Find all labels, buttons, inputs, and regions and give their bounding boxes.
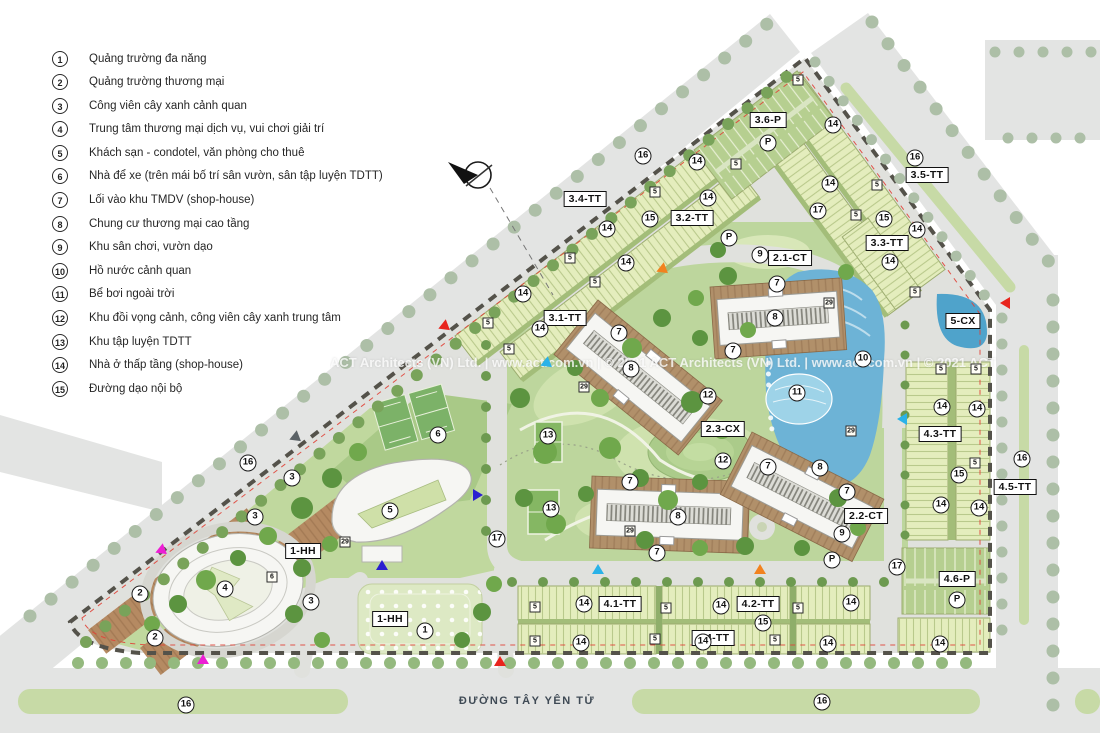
map-badge: 5 (650, 634, 661, 645)
map-badge: 5 (936, 364, 947, 375)
map-circle-marker: 14 (700, 190, 717, 207)
map-circle-marker: 11 (789, 385, 806, 402)
map-badge: 5 (650, 187, 661, 198)
map-circle-marker: 7 (839, 484, 856, 501)
direction-arrow-icon (197, 654, 209, 664)
masterplan-page: ACT Architects (VN) Ltd. | www.act.com.v… (0, 0, 1100, 733)
map-badge: 5 (970, 458, 981, 469)
map-circle-marker: 14 (689, 154, 706, 171)
map-badge: 5 (590, 277, 601, 288)
legend: 1 Quảng trường đa năng 2 Quảng trường th… (52, 50, 383, 404)
map-circle-marker: 8 (767, 310, 784, 327)
map-badge: 5 (731, 159, 742, 170)
legend-item-number: 9 (52, 239, 68, 255)
legend-item: 7 Lối vào khu TMDV (shop-house) (52, 192, 383, 209)
map-badge: 5 (504, 344, 515, 355)
map-circle-marker: 14 (843, 595, 860, 612)
map-circle-marker: 14 (695, 634, 712, 651)
map-circle-marker: 14 (969, 401, 986, 418)
legend-item-label: Hồ nước cảnh quan (89, 265, 191, 277)
legend-item-label: Quảng trường đa năng (89, 53, 207, 65)
direction-arrow-icon (754, 564, 766, 574)
map-circle-marker: 8 (812, 460, 829, 477)
map-circle-marker: 1 (417, 623, 434, 640)
legend-item-number: 15 (52, 381, 68, 397)
map-circle-marker: 7 (611, 325, 628, 342)
zone-label: 4.5-TT (994, 479, 1037, 495)
zone-label: 3.5-TT (906, 167, 949, 183)
map-circle-marker: 16 (240, 455, 257, 472)
map-circle-marker: 17 (810, 203, 827, 220)
map-circle-marker: 17 (489, 531, 506, 548)
map-circle-marker: 14 (822, 176, 839, 193)
map-circle-marker: 14 (933, 497, 950, 514)
map-badge: 5 (910, 287, 921, 298)
legend-item: 10 Hồ nước cảnh quan (52, 262, 383, 279)
map-badge: 5 (793, 603, 804, 614)
direction-arrow-icon (494, 656, 506, 666)
zone-label: 2.2-CT (844, 508, 888, 524)
direction-arrow-icon (289, 430, 304, 446)
map-circle-marker: 12 (715, 453, 732, 470)
map-circle-marker: P (949, 592, 966, 609)
map-badge: 5 (872, 180, 883, 191)
legend-item-number: 11 (52, 286, 68, 302)
legend-item-label: Khu sân chơi, vườn dạo (89, 241, 213, 253)
map-circle-marker: 17 (889, 559, 906, 576)
map-circle-marker: 4 (217, 581, 234, 598)
zone-label: 2.3-CX (701, 421, 745, 437)
legend-item-label: Bể bơi ngoài trời (89, 288, 174, 300)
map-circle-marker: 2 (147, 630, 164, 647)
map-badge: 29 (579, 382, 590, 393)
map-circle-marker: 15 (951, 467, 968, 484)
map-circle-marker: 14 (713, 598, 730, 615)
map-badge: 5 (971, 364, 982, 375)
legend-item-label: Đường dạo nội bộ (89, 383, 182, 395)
map-circle-marker: P (721, 230, 738, 247)
map-circle-marker: 7 (725, 343, 742, 360)
map-circle-marker: 14 (825, 117, 842, 134)
map-circle-marker: 12 (700, 388, 717, 405)
legend-item: 2 Quảng trường thương mại (52, 74, 383, 91)
direction-arrow-icon (155, 543, 170, 559)
map-badge: 29 (824, 298, 835, 309)
legend-item-number: 14 (52, 357, 68, 373)
legend-item: 14 Nhà ở thấp tầng (shop-house) (52, 357, 383, 374)
legend-item-label: Khách sạn - condotel, văn phòng cho thuê (89, 147, 304, 159)
direction-arrow-icon (438, 319, 453, 335)
map-circle-marker: 14 (882, 254, 899, 271)
map-circle-marker: 13 (540, 428, 557, 445)
direction-arrow-icon (1000, 297, 1010, 309)
map-badge: 29 (340, 537, 351, 548)
direction-arrow-icon (376, 560, 388, 570)
direction-arrow-icon (473, 489, 483, 501)
map-circle-marker: 7 (649, 545, 666, 562)
map-circle-marker: 14 (820, 636, 837, 653)
legend-item-label: Khu đồi vọng cảnh, công viên cây xanh tr… (89, 312, 341, 324)
zone-label: 3.3-TT (866, 235, 909, 251)
map-badge: 5 (770, 635, 781, 646)
map-badge: 5 (530, 636, 541, 647)
map-badge: 29 (846, 426, 857, 437)
map-circle-marker: 16 (907, 150, 924, 167)
map-badge: 5 (851, 210, 862, 221)
legend-item: 3 Công viên cây xanh cảnh quan (52, 97, 383, 114)
map-circle-marker: 9 (834, 526, 851, 543)
map-badge: 5 (793, 75, 804, 86)
legend-item: 1 Quảng trường đa năng (52, 50, 383, 67)
map-circle-marker: 3 (247, 509, 264, 526)
legend-item-label: Nhà ở thấp tầng (shop-house) (89, 359, 243, 371)
zone-label: 1-HH (285, 543, 321, 559)
map-circle-marker: 8 (623, 361, 640, 378)
legend-item: 9 Khu sân chơi, vườn dạo (52, 239, 383, 256)
zone-label: 3.2-TT (671, 210, 714, 226)
legend-item-number: 13 (52, 334, 68, 350)
map-circle-marker: 16 (1014, 451, 1031, 468)
map-circle-marker: P (760, 135, 777, 152)
legend-item-label: Trung tâm thương mại dịch vụ, vui chơi g… (89, 123, 324, 135)
legend-item-label: Chung cư thương mại cao tầng (89, 218, 249, 230)
legend-item-number: 3 (52, 98, 68, 114)
legend-item-label: Khu tập luyện TDTT (89, 336, 192, 348)
map-badge: 29 (625, 526, 636, 537)
map-circle-marker: 2 (132, 586, 149, 603)
map-circle-marker: 15 (642, 211, 659, 228)
legend-item-number: 2 (52, 74, 68, 90)
legend-item-number: 8 (52, 216, 68, 232)
map-circle-marker: 14 (618, 255, 635, 272)
map-badge: 5 (483, 318, 494, 329)
legend-item-number: 1 (52, 51, 68, 67)
map-circle-marker: 6 (430, 427, 447, 444)
zone-label: 3.1-TT (544, 310, 587, 326)
legend-item: 5 Khách sạn - condotel, văn phòng cho th… (52, 144, 383, 161)
map-circle-marker: P (824, 552, 841, 569)
direction-arrow-icon (897, 413, 907, 425)
map-circle-marker: 14 (573, 635, 590, 652)
map-circle-marker: 5 (382, 503, 399, 520)
zone-label: 2.1-CT (768, 250, 812, 266)
legend-item: 8 Chung cư thương mại cao tầng (52, 215, 383, 232)
map-circle-marker: 14 (971, 500, 988, 517)
direction-arrow-icon (540, 356, 555, 372)
map-circle-marker: 3 (303, 594, 320, 611)
map-circle-marker: 7 (769, 276, 786, 293)
legend-item: 12 Khu đồi vọng cảnh, công viên cây xanh… (52, 310, 383, 327)
map-circle-marker: 9 (752, 247, 769, 264)
map-circle-marker: 14 (909, 222, 926, 239)
map-circle-marker: 7 (760, 459, 777, 476)
road-name-label: ĐƯỜNG TÂY YÊN TỬ (459, 695, 595, 707)
legend-item: 11 Bể bơi ngoài trời (52, 286, 383, 303)
map-circle-marker: 16 (178, 697, 195, 714)
map-circle-marker: 10 (855, 351, 872, 368)
map-circle-marker: 7 (622, 474, 639, 491)
direction-arrow-icon (656, 262, 671, 278)
legend-item: 4 Trung tâm thương mại dịch vụ, vui chơi… (52, 121, 383, 138)
legend-item: 15 Đường dạo nội bộ (52, 380, 383, 397)
map-circle-marker: 3 (284, 470, 301, 487)
map-circle-marker: 16 (635, 148, 652, 165)
zone-label: 3.4-TT (564, 191, 607, 207)
map-circle-marker: 16 (814, 694, 831, 711)
legend-item-label: Quảng trường thương mại (89, 76, 224, 88)
legend-item-number: 10 (52, 263, 68, 279)
direction-arrow-icon (592, 564, 604, 574)
map-circle-marker: 15 (876, 211, 893, 228)
map-circle-marker: 14 (532, 321, 549, 338)
legend-item: 6 Nhà để xe (trên mái bố trí sân vườn, s… (52, 168, 383, 185)
map-badge: 6 (267, 572, 278, 583)
map-circle-marker: 15 (755, 615, 772, 632)
legend-item-number: 12 (52, 310, 68, 326)
zone-label: 4.1-TT (599, 596, 642, 612)
map-circle-marker: 8 (670, 509, 687, 526)
map-badge: 5 (530, 602, 541, 613)
legend-item-label: Nhà để xe (trên mái bố trí sân vườn, sân… (89, 170, 383, 182)
legend-item-number: 7 (52, 192, 68, 208)
zone-label: 1-HH (372, 611, 408, 627)
map-circle-marker: 13 (543, 501, 560, 518)
zone-label: 3.6-P (750, 112, 787, 128)
zone-label: 5-CX (945, 313, 980, 329)
map-circle-marker: 14 (515, 286, 532, 303)
legend-item-number: 6 (52, 168, 68, 184)
map-badge: 5 (661, 603, 672, 614)
zone-label: 4.3-TT (919, 426, 962, 442)
legend-item: 13 Khu tập luyện TDTT (52, 333, 383, 350)
map-badge: 5 (565, 253, 576, 264)
legend-item-label: Lối vào khu TMDV (shop-house) (89, 194, 254, 206)
zone-label: 4.2-TT (737, 596, 780, 612)
map-circle-marker: 14 (932, 636, 949, 653)
legend-item-number: 5 (52, 145, 68, 161)
map-circle-marker: 14 (576, 596, 593, 613)
legend-item-number: 4 (52, 121, 68, 137)
map-circle-marker: 14 (599, 221, 616, 238)
legend-item-label: Công viên cây xanh cảnh quan (89, 100, 247, 112)
map-circle-marker: 14 (934, 399, 951, 416)
zone-label: 4.6-P (939, 571, 976, 587)
